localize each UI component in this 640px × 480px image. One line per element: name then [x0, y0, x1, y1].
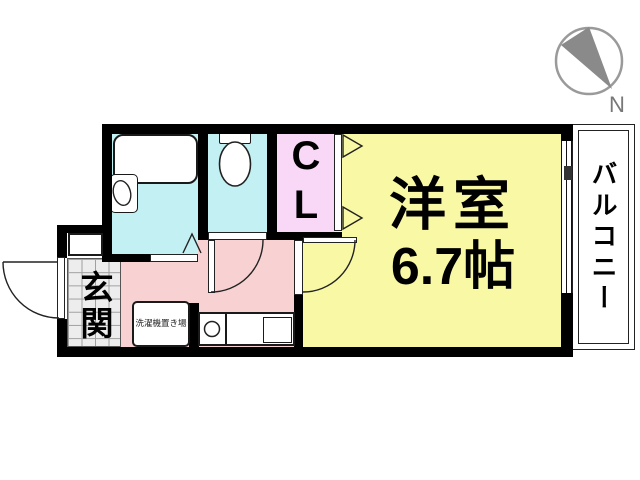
- wall-left-lower: [57, 319, 67, 357]
- balcony-label: バルコニー: [578, 130, 629, 344]
- kitchen-doorway: [208, 232, 267, 240]
- wall-room-west-lower: [294, 295, 303, 357]
- kitchen-stove-space: [263, 317, 292, 343]
- toilet-room-floor: [208, 134, 267, 232]
- entrance-label: 玄関: [73, 263, 115, 348]
- main-room-name: 洋室: [340, 176, 566, 236]
- entrance-door-leaf: [57, 257, 65, 319]
- wall-bathroom-left: [102, 124, 112, 262]
- wall-bathroom-bottom: [102, 254, 150, 262]
- wall-entrance-top: [57, 225, 105, 233]
- entrance-door-swing-arc: [3, 262, 59, 318]
- wall-room-west-upper: [294, 232, 303, 240]
- wall-right-upper: [561, 124, 573, 141]
- washing-machine-label: 洗濯機置き場: [134, 302, 188, 346]
- kitchen-door-leaf: [208, 240, 215, 293]
- wall-toilet-closet: [267, 124, 277, 240]
- bathroom-sink: [110, 174, 138, 213]
- window-track-line: [571, 141, 572, 293]
- compass-needle: [561, 27, 612, 89]
- main-room-label: 洋室 6.7帖: [340, 176, 566, 293]
- wall-bathroom-right: [198, 124, 208, 240]
- room-doorway: [294, 240, 303, 295]
- wall-top: [102, 124, 573, 134]
- main-room-size: 6.7帖: [340, 241, 566, 293]
- kitchen-counter-divider: [225, 312, 227, 346]
- compass-circle: [556, 28, 622, 94]
- floor-plan: 洋室 6.7帖 CL 玄関 バルコニー 洗濯機置き場 N: [0, 0, 640, 480]
- bathroom-doorway: [150, 254, 198, 262]
- window-track-line: [566, 141, 567, 293]
- shoe-cabinet: [68, 233, 103, 256]
- wall-right-lower: [561, 293, 573, 356]
- north-label: N: [609, 92, 625, 118]
- wall-bottom: [57, 347, 573, 357]
- closet-label: CL: [277, 134, 334, 232]
